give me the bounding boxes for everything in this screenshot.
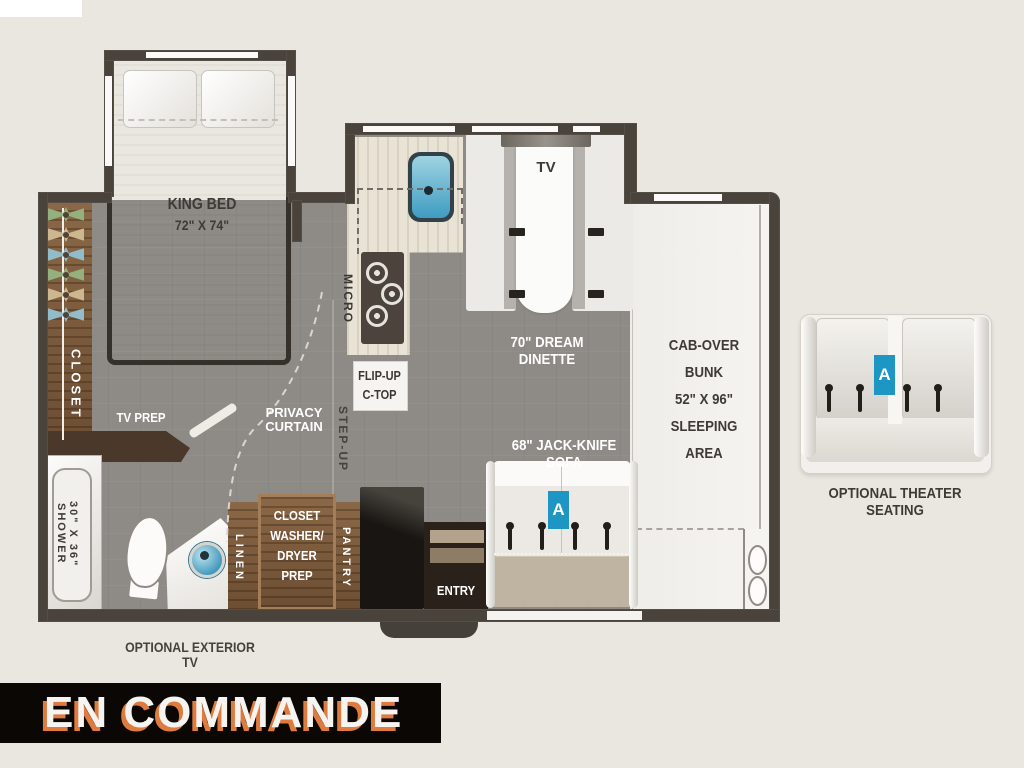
status-banner: EN COMMANDE: [0, 683, 441, 743]
washer-line: PREP: [281, 568, 312, 583]
window-sofa-slide: [487, 611, 642, 620]
burner-icon: [366, 305, 388, 327]
hanger-shirt-icon: [48, 247, 84, 262]
stitch-pin-icon: [936, 390, 940, 412]
wall-bedroom-top-left: [38, 192, 112, 203]
flip-up-label: FLIP-UP C-TOP: [356, 367, 403, 405]
bench-dash: [588, 290, 604, 298]
window: [146, 52, 258, 58]
hanger-shirt-icon: [48, 207, 84, 222]
entry-step: [430, 530, 484, 543]
shower-size-label: 30" X 36": [67, 474, 79, 594]
counter-dash: [357, 188, 359, 254]
theater-arm: [801, 317, 816, 457]
bed-label: KING BED: [147, 196, 256, 214]
wall-right: [769, 192, 780, 622]
stitch-pin-icon: [905, 390, 909, 412]
bench-dash: [509, 290, 525, 298]
cab-line: SLEEPING: [671, 418, 738, 435]
privacy-line2: CURTAIN: [265, 419, 323, 434]
shower-label-group: SHOWER 30" X 36": [55, 474, 87, 594]
sofa-arm: [486, 461, 495, 608]
cab-divider-line: [759, 205, 761, 530]
stitch-pin-icon: [540, 528, 544, 550]
linen-label: LINEN: [233, 516, 253, 600]
hanger-shirt-icon: [48, 267, 84, 282]
kitchen-faucet-icon: [424, 186, 433, 195]
exterior-tv-label: OPTIONAL EXTERIOR TV: [121, 640, 258, 671]
bench-dash: [509, 228, 525, 236]
counter-dash: [461, 188, 463, 224]
cab-line: BUNK: [685, 364, 723, 381]
window: [288, 76, 295, 166]
bed-fold-line: [118, 119, 278, 121]
stitch-pin-icon: [827, 390, 831, 412]
cab-dash-line: [636, 528, 744, 530]
window: [573, 126, 600, 132]
entry-label: ENTRY: [430, 584, 483, 598]
privacy-curtain-label: PRIVACY CURTAIN: [252, 406, 336, 435]
hanger-shirt-icon: [48, 287, 84, 302]
wall-bottom: [38, 609, 780, 622]
sofa-arm: [629, 461, 638, 608]
sofa-badge-a: A: [548, 491, 569, 529]
window: [654, 194, 722, 201]
dinette-bench-left-edge: [504, 135, 516, 309]
closet-label: CLOSET: [68, 326, 90, 442]
tv-prep-label: TV PREP: [110, 411, 172, 425]
theater-arm: [974, 317, 989, 457]
wall-bedroom-right-stub: [292, 200, 302, 242]
washer-line: CLOSET: [274, 508, 320, 523]
refrigerator: [360, 487, 424, 609]
sofa-slide-floor: [494, 556, 630, 607]
cab-seat-icon: [748, 545, 767, 575]
sofa-slide-dotline: [494, 553, 630, 555]
stitch-pin-icon: [573, 528, 577, 550]
washer-prep-label: CLOSET WASHER/ DRYER PREP: [263, 506, 332, 587]
step-up-label: STEP-UP: [336, 388, 354, 490]
dinette-label: 70" DREAM DINETTE: [490, 335, 604, 368]
flip-up-line: FLIP-UP: [358, 369, 401, 383]
theater-badge-a: A: [874, 355, 895, 395]
sofa-label: 68" JACK-KNIFE SOFA: [504, 438, 624, 471]
cab-line: AREA: [685, 445, 722, 462]
theater-label: OPTIONAL THEATER SEATING: [808, 486, 982, 519]
corner-patch: [0, 0, 82, 17]
cab-line: CAB-OVER: [669, 337, 739, 354]
window: [472, 126, 558, 132]
faucet-icon: [200, 551, 209, 560]
bed-size-label: 72" X 74": [147, 218, 256, 233]
washer-line: WASHER/: [270, 528, 323, 543]
bench-dash: [588, 228, 604, 236]
washer-line: DRYER: [277, 548, 317, 563]
burner-icon: [381, 283, 403, 305]
entry-step: [430, 548, 484, 563]
cab-line: 52" X 96": [675, 391, 733, 408]
cab-over-label: CAB-OVER BUNK 52" X 96" SLEEPING AREA: [655, 332, 754, 467]
stitch-pin-icon: [858, 390, 862, 412]
shower-label: SHOWER: [55, 474, 67, 594]
page: { "status_banner": { "label": "EN COMMAN…: [0, 0, 1024, 768]
stitch-pin-icon: [605, 528, 609, 550]
micro-label: MICRO: [341, 258, 357, 340]
counter-dash: [357, 188, 463, 190]
hanger-shirt-icon: [48, 227, 84, 242]
window: [105, 76, 112, 166]
cab-seat-icon: [748, 576, 767, 606]
wall-left: [38, 192, 48, 622]
pantry-label: PANTRY: [340, 512, 360, 604]
status-banner-text: EN COMMANDE: [0, 683, 441, 743]
hanger-shirt-icon: [48, 307, 84, 322]
dinette-bench-right-edge: [572, 135, 585, 309]
flip-up-line: C-TOP: [362, 388, 396, 402]
theater-seat-bottom: [806, 418, 984, 462]
burner-icon: [366, 262, 388, 284]
window: [363, 126, 455, 132]
stitch-pin-icon: [508, 528, 512, 550]
tv-label: TV: [534, 160, 558, 177]
wall-galley-connector-left: [345, 123, 355, 204]
closet-hangers: [48, 207, 84, 322]
privacy-line1: PRIVACY: [266, 405, 323, 420]
